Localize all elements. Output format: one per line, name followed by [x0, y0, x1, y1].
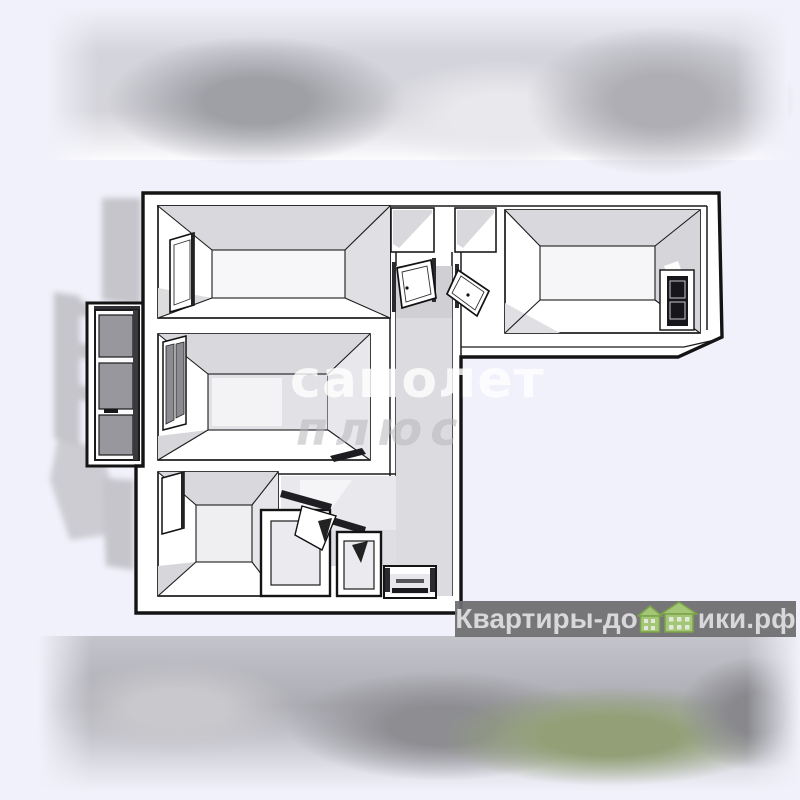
brand-text-prefix: Квартиры-до: [455, 601, 637, 637]
page: { "page": { "background_color": "#f1f1fb…: [0, 0, 800, 800]
closet-left: [391, 208, 434, 252]
room-top-left: [158, 206, 390, 318]
entrance-doorway: [384, 566, 436, 598]
photo-canvas: самолет плюс Квартиры-до ики.: [0, 0, 800, 800]
wc-box: [337, 532, 381, 596]
floorplan-3d-drawing: [0, 0, 800, 800]
house-icon-large: [661, 602, 697, 632]
closet-right: [455, 208, 496, 252]
brand-text-suffix: ики.рф: [698, 601, 796, 637]
door-bottom-left-room: [162, 472, 184, 534]
brand-watermark-band: Квартиры-до ики.рф: [455, 601, 796, 637]
house-icon-small: [638, 606, 662, 632]
house-icons: [637, 601, 699, 635]
room-top-right: [505, 210, 700, 333]
room-middle-left: [158, 334, 370, 462]
balcony-window: [87, 303, 145, 466]
